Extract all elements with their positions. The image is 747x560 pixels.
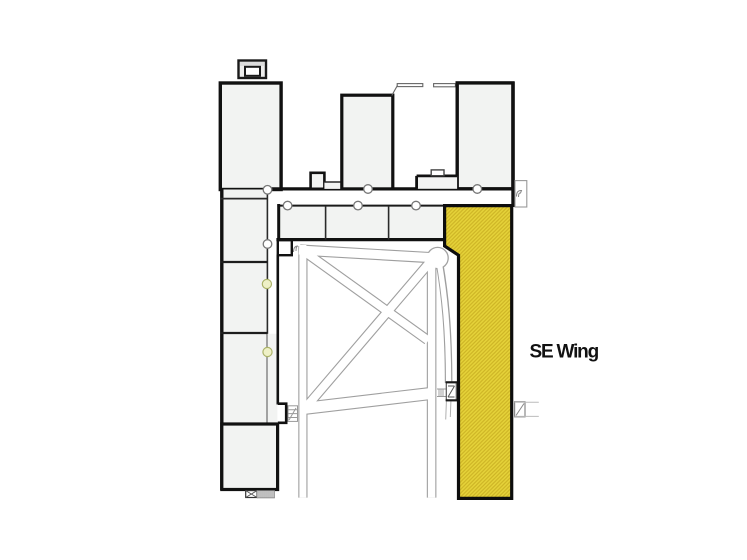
svg-text:SE Wing: SE Wing [530,342,599,363]
